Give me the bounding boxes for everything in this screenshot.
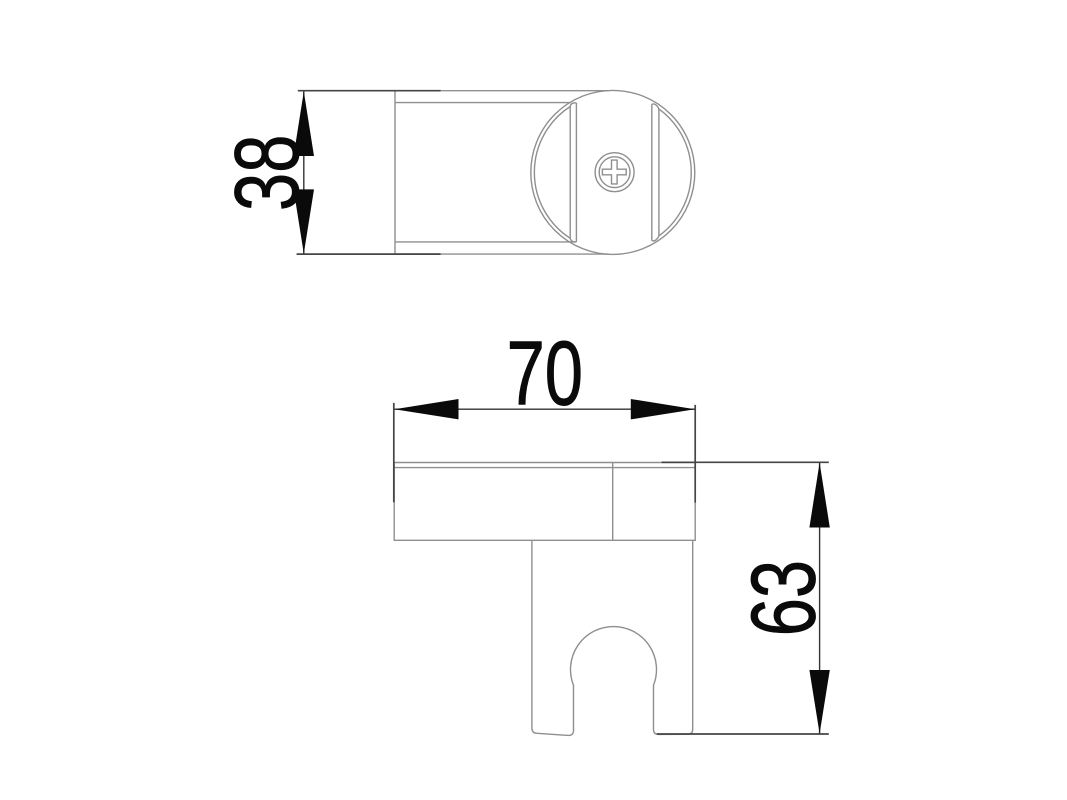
svg-text:70: 70	[507, 323, 583, 425]
svg-text:63: 63	[733, 560, 835, 636]
svg-text:38: 38	[217, 135, 319, 211]
